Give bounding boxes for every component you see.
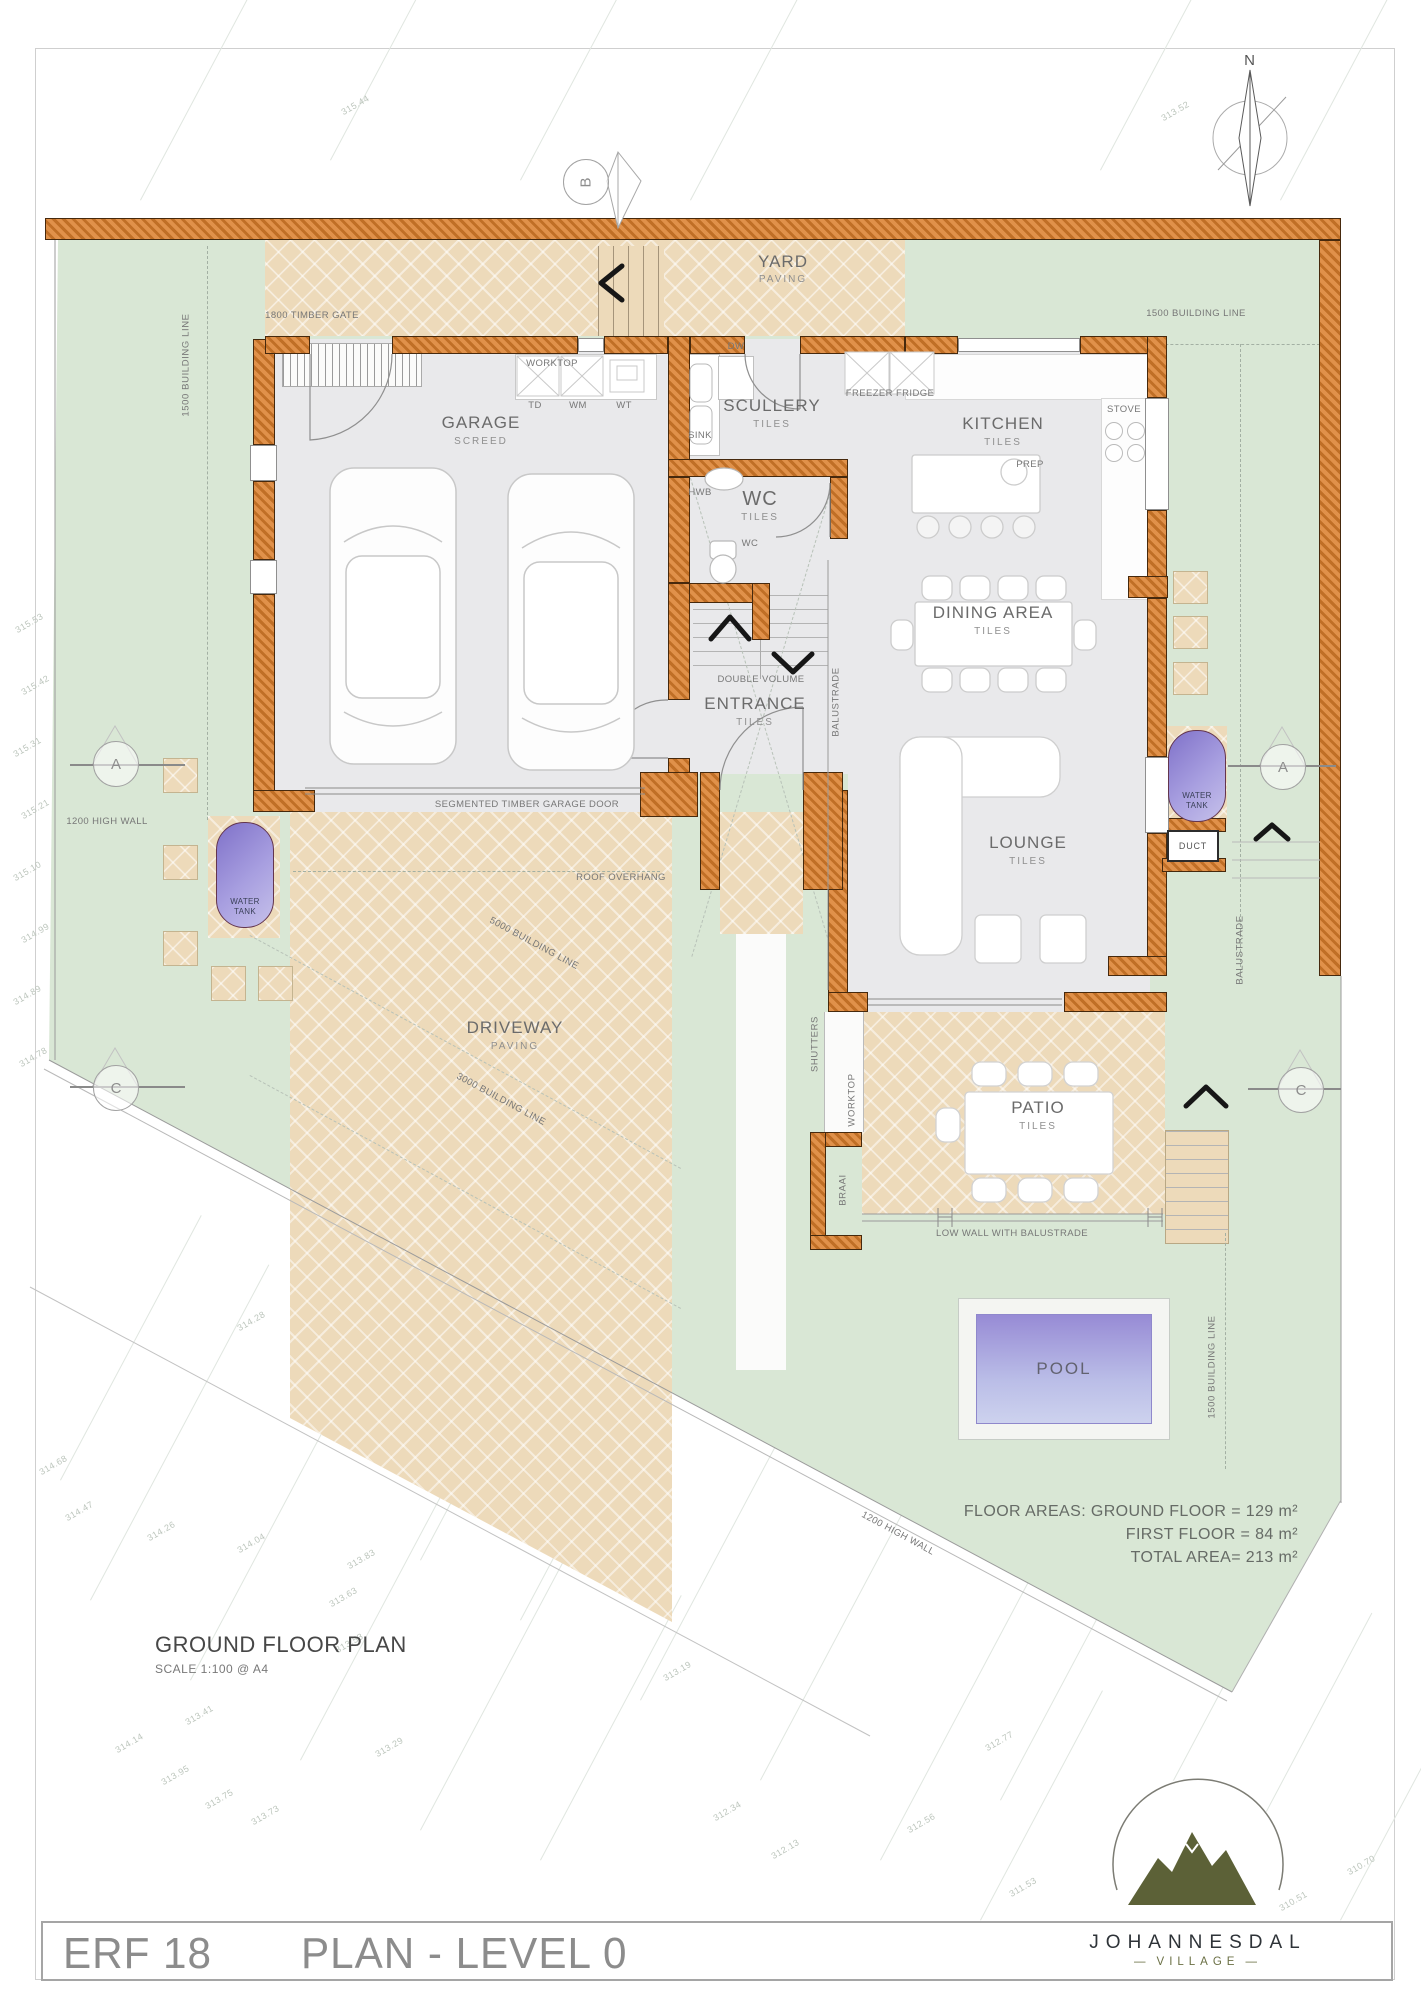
contour-label: 313.29 [374,1735,405,1759]
wt-label: WT [616,400,632,411]
building-line-left [207,246,208,820]
wall-segment [668,459,848,477]
window [250,560,277,594]
paving-slab [1173,571,1208,604]
low-wall-note: LOW WALL WITH BALUSTRADE [936,1228,1088,1239]
contour-label: 311.74 [1158,1869,1189,1893]
wall-segment [668,477,690,583]
garage-door-note: SEGMENTED TIMBER GARAGE DOOR [435,799,619,810]
contour-label: 310.70 [1346,1853,1377,1877]
room-label-wc: WC [742,488,777,511]
prep-label: PREP [1016,459,1043,470]
wall-segment [1147,336,1167,398]
contour-label: 311.53 [1008,1875,1039,1899]
water-tank-right: WATER TANK [1168,730,1226,822]
contour-label: 315.42 [20,673,51,697]
room-finish-yard: PAVING [759,274,807,285]
balustrade-label-right: BALUSTRADE [1235,915,1246,984]
water-tank-left: WATER TANK [216,822,274,928]
wall-segment [905,336,958,354]
contour-label: 313.19 [662,1659,693,1683]
contour-label: 311.91 [1120,1839,1151,1863]
wall-segment [253,594,275,792]
contour-label: 314.28 [236,1309,267,1333]
wall-segment [265,336,310,354]
contour-line [1240,1613,1372,1861]
paving-slab [163,845,198,880]
duct: DUCT [1167,830,1219,862]
wall-segment [668,583,690,700]
floor-areas: FLOOR AREAS: GROUND FLOOR = 129 m² FIRST… [964,1500,1298,1569]
section-marker-c-right: C [1278,1067,1324,1113]
wall-segment [640,772,698,817]
kitchen-counter-right [1101,398,1149,600]
entrance-porch-paving [720,812,803,934]
marker-letter: B [577,177,594,187]
erf-number: ERF 18 [63,1929,212,1979]
shutters-label: SHUTTERS [810,1016,821,1072]
water-tank-left-label: WATER TANK [225,897,265,917]
building-line-right [1240,344,1241,972]
room-finish-scullery: TILES [753,419,791,430]
contour-label: 314.14 [114,1731,145,1755]
wall-segment [253,481,275,560]
room-finish-wc: TILES [741,512,779,523]
building-line-note-pool: 1500 BUILDING LINE [1207,1315,1218,1418]
wall-segment [752,583,770,640]
contour-label: 312.77 [984,1729,1015,1753]
contour-line [880,1560,1041,1861]
window [250,445,277,481]
wall-segment [830,477,848,539]
wc-pan-label: WC [742,538,759,549]
window [1145,398,1169,510]
room-label-yard: YARD [758,252,808,272]
high-wall-note-left: 1200 HIGH WALL [66,816,147,827]
contour-line [1100,0,1232,170]
contour-label: 312.13 [770,1837,801,1861]
contour-label: 314.99 [20,921,51,945]
contour-label: 313.52 [1160,99,1191,123]
contour-label: 314.89 [12,983,43,1007]
hwb-label: HWB [688,487,711,498]
water-tank-right-label: WATER TANK [1177,791,1217,811]
paving-slab [258,966,293,1001]
stove-label: STOVE [1107,404,1141,415]
contour-line [1280,0,1394,200]
contour-label: 315.21 [20,797,51,821]
building-line-note-left: 1500 BUILDING LINE [181,313,192,416]
wall-segment [800,336,905,354]
plan-scale: SCALE 1:100 @ A4 [155,1662,269,1676]
room-finish-patio: TILES [1019,1121,1057,1132]
contour-label: 313.95 [160,1763,191,1787]
contour-label: 312.56 [906,1811,937,1835]
contour-label: 310.51 [1278,1889,1309,1913]
worktop-patio-label: WORKTOP [847,1073,858,1126]
timber-gate-note: 1800 TIMBER GATE [265,310,359,321]
section-marker-c-left: C [93,1065,139,1111]
paving-slab [163,758,198,793]
floor-areas-line1: FLOOR AREAS: GROUND FLOOR = 129 m² [964,1500,1298,1523]
wall-segment [1064,992,1167,1012]
room-label-lounge: LOUNGE [989,833,1067,853]
marker-letter: C [1296,1082,1307,1099]
wall-segment [810,1132,826,1250]
wm-label: WM [569,400,587,411]
north-label: N [1244,52,1256,69]
floor-areas-line3: TOTAL AREA= 213 m² [964,1546,1298,1569]
contour-label: 314.47 [64,1499,95,1523]
dishwasher [718,356,754,400]
contour-line [60,1215,202,1480]
marker-letter: C [111,1080,122,1097]
shutter-strip [824,1012,864,1132]
contour-line [540,1595,682,1860]
dw-label: DW [728,341,745,352]
wall-segment [45,218,1341,240]
freezer-fridge-label: FREEZER FRIDGE [846,388,934,399]
room-label-entrance: ENTRANCE [704,694,806,714]
paving-slab [163,931,198,966]
braai-label: BRAAI [838,1174,849,1206]
room-finish-kitchen: TILES [984,437,1022,448]
floor-plan-sheet: 315.44313.52312.84315.16313.04315.53315.… [0,0,1421,2000]
double-volume-label: DOUBLE VOLUME [717,674,804,685]
wall-segment [828,992,868,1012]
kitchen-counter-top [905,354,1149,400]
balustrade-label-stair: BALUSTRADE [831,667,842,736]
sink-label: SINK [688,430,712,441]
wall-segment [253,339,275,445]
yard-paving [265,240,905,336]
floor-areas-line2: FIRST FLOOR = 84 m² [964,1523,1298,1546]
wall-segment [392,336,578,354]
logo-name: JOHANNESDAL [1089,1932,1306,1954]
room-label-patio: PATIO [1011,1098,1065,1118]
contour-line [140,0,282,200]
room-label-kitchen: KITCHEN [962,414,1044,434]
wall-segment [604,336,668,354]
paving-slab [1173,662,1208,695]
contour-label: 315.10 [12,859,43,883]
contour-label: 315.53 [14,611,45,635]
wall-segment [810,1235,862,1250]
room-label-driveway: DRIVEWAY [467,1018,564,1038]
contour-label: 314.78 [18,1045,49,1069]
room-label-pool: POOL [1036,1359,1091,1379]
room-label-dining: DINING AREA [933,603,1054,623]
building-line-pool [1225,1233,1226,1469]
logo-subtitle: VILLAGE [1128,1956,1268,1968]
window [958,338,1080,352]
contour-line [330,0,491,160]
contour-label: 313.73 [250,1803,281,1827]
paving-slab [1173,616,1208,649]
window [578,338,604,352]
contour-label: 312.34 [712,1799,743,1823]
wall-segment [700,772,720,890]
building-line-top [1140,344,1320,345]
contour-label: 313.75 [204,1787,235,1811]
wall-segment [668,336,690,460]
contour-line [1340,1726,1421,1921]
room-finish-entrance: TILES [736,717,774,728]
pool: POOL [976,1314,1152,1424]
contour-line [980,1690,1103,1920]
section-marker-b: B [563,159,609,205]
td-label: TD [528,400,541,411]
wall-segment [1147,833,1167,976]
contour-label: 314.26 [146,1519,177,1543]
wall-segment [1147,598,1167,757]
window [1145,757,1169,833]
contour-label: 313.83 [346,1547,377,1571]
marker-letter: A [111,756,121,773]
front-walkway [736,934,786,1370]
contour-label: 313.41 [184,1703,215,1727]
wall-segment [803,772,843,890]
room-finish-lounge: TILES [1009,856,1047,867]
wall-segment [1128,576,1168,598]
paving-slab [211,966,246,1001]
room-label-scullery: SCULLERY [723,396,820,416]
building-line-note-top: 1500 BUILDING LINE [1146,308,1246,319]
room-finish-garage: SCREED [454,436,508,447]
wall-segment [1108,956,1167,976]
plan-title: GROUND FLOOR PLAN [155,1632,407,1658]
room-label-garage: GARAGE [442,413,521,433]
room-finish-driveway: PAVING [491,1041,539,1052]
roof-overhang-note: ROOF OVERHANG [576,872,666,883]
room-finish-dining: TILES [974,626,1012,637]
contour-line [520,0,662,180]
contour-label: 313.63 [328,1585,359,1609]
contour-line [690,0,813,200]
section-marker-a-right: A [1260,744,1306,790]
wall-segment [253,790,315,812]
garage-floor [272,339,672,812]
sheet-title: PLAN - LEVEL 0 [301,1929,627,1979]
contour-label: 315.31 [12,735,43,759]
marker-letter: A [1278,759,1288,776]
wall-segment [1319,240,1341,976]
section-marker-a-left: A [93,741,139,787]
garden-stair [1165,1130,1229,1244]
yard-steps [598,246,664,336]
worktop-label: WORKTOP [526,358,578,369]
